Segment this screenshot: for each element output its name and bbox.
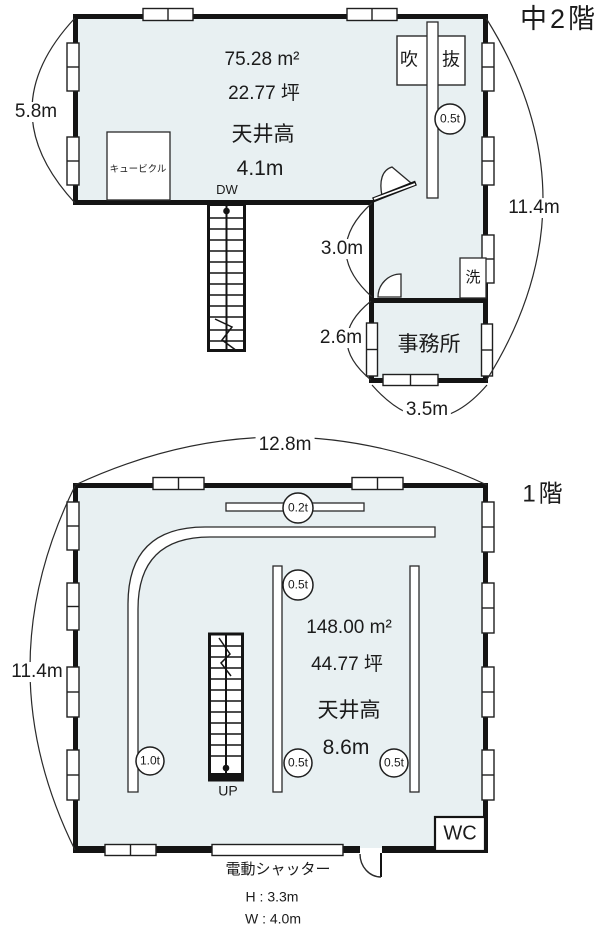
dim-label-3-0m: 3.0m	[318, 239, 366, 259]
first-floor-ceiling-label: 天井高	[318, 700, 381, 722]
first-floor-area-tsubo: 44.77 坪	[311, 655, 383, 675]
stairs-start-dot	[223, 765, 230, 772]
stairs-mezzanine	[209, 205, 245, 352]
shutter-height-label: H : 3.3m	[246, 890, 299, 905]
load-label-0-2t: 0.2t	[288, 502, 308, 515]
shutter-label: 電動シャッター	[225, 862, 330, 878]
stairs-start-dot	[223, 208, 230, 215]
first-floor-title: 1階	[522, 481, 565, 506]
dumbwaiter-label: DW	[216, 183, 238, 197]
floorplan-canvas: 中2階 75.28 m² 22.77 坪 天井高 4.1m DW 5.8m 11…	[0, 0, 607, 928]
dim-label-11-4m-mezzanine: 11.4m	[505, 198, 562, 218]
office-label: 事務所	[398, 334, 461, 356]
load-label-0-5t-mezzanine: 0.5t	[440, 113, 460, 126]
mezzanine-beam	[427, 22, 438, 198]
mezzanine-ceiling-label: 天井高	[232, 124, 295, 146]
electric-shutter-opening	[212, 845, 343, 856]
load-label-0-5t-lower: 0.5t	[288, 757, 308, 770]
right-beam-0-5t	[410, 566, 419, 792]
stairs-bottom-edge	[208, 773, 244, 781]
dim-label-12-8m: 12.8m	[256, 435, 315, 455]
first-floor-plan	[30, 437, 494, 877]
first-floor-entry-door	[360, 853, 381, 877]
void-label-left: 吹	[400, 51, 418, 70]
dim-label-11-4m-first-floor: 11.4m	[8, 662, 65, 682]
mezzanine-area-m2: 75.28 m²	[225, 50, 300, 70]
dim-label-2-6m: 2.6m	[317, 328, 365, 348]
wall-top	[73, 14, 488, 19]
cubicle-label: キュービクル	[110, 165, 167, 175]
dim-label-5-8m: 5.8m	[12, 102, 60, 122]
dim-label-3-5m: 3.5m	[403, 400, 451, 420]
mezzanine-area-tsubo: 22.77 坪	[228, 84, 300, 104]
wall-office-top	[369, 298, 488, 303]
wall-top	[73, 483, 488, 488]
shutter-width-label: W : 4.0m	[245, 912, 301, 927]
wc-label: WC	[443, 824, 476, 845]
mid-beam-0-5t	[273, 566, 282, 792]
void-label-right: 抜	[442, 51, 460, 70]
mezzanine-ceiling-height: 4.1m	[237, 158, 284, 180]
load-label-0-5t-upper: 0.5t	[288, 579, 308, 592]
floorplan-linework	[0, 0, 607, 928]
mezzanine-title: 中2階	[520, 5, 598, 33]
stairs-up-label: UP	[218, 784, 237, 799]
load-label-1-0t: 1.0t	[140, 755, 160, 768]
first-floor-area-m2: 148.00 m²	[306, 618, 392, 638]
door-swing-arc	[360, 854, 381, 877]
first-floor-ceiling-height: 8.6m	[323, 737, 370, 759]
load-label-0-5t-right: 0.5t	[384, 757, 404, 770]
wash-label: 洗	[465, 270, 480, 286]
stairs-first-floor	[208, 634, 244, 781]
